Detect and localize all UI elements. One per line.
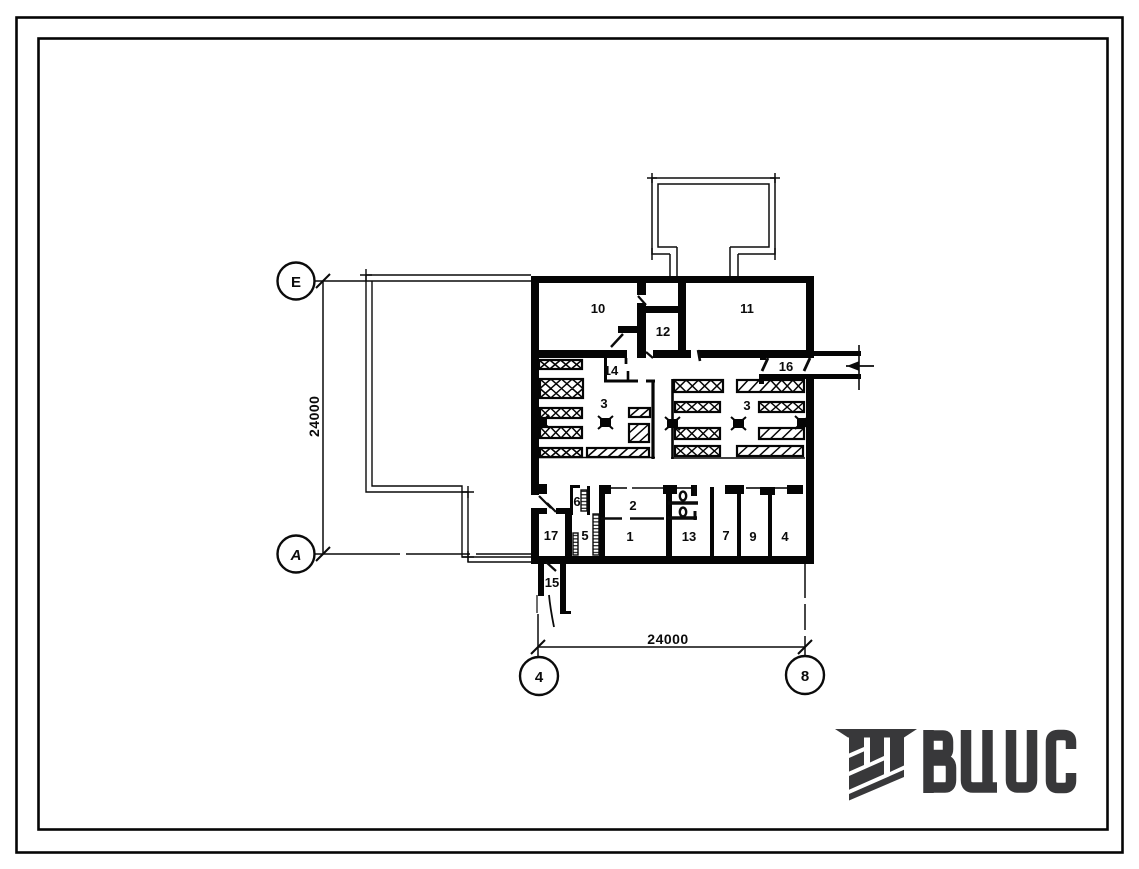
svg-text:9: 9 xyxy=(749,529,756,544)
svg-text:Е: Е xyxy=(291,274,301,291)
svg-text:5: 5 xyxy=(581,528,588,543)
svg-text:14: 14 xyxy=(604,363,619,378)
svg-text:6: 6 xyxy=(573,494,580,509)
svg-text:7: 7 xyxy=(722,528,729,543)
svg-text:10: 10 xyxy=(591,301,605,316)
svg-text:8: 8 xyxy=(801,668,809,685)
svg-text:15: 15 xyxy=(545,575,559,590)
svg-text:4: 4 xyxy=(781,529,789,544)
svg-text:3: 3 xyxy=(600,396,607,411)
svg-text:1: 1 xyxy=(626,529,633,544)
svg-text:24000: 24000 xyxy=(306,396,322,437)
svg-text:17: 17 xyxy=(544,528,558,543)
svg-text:А: А xyxy=(290,547,302,564)
svg-text:12: 12 xyxy=(656,324,670,339)
svg-text:24000: 24000 xyxy=(647,631,688,647)
svg-text:13: 13 xyxy=(682,529,696,544)
svg-text:11: 11 xyxy=(740,301,754,316)
svg-text:2: 2 xyxy=(629,498,636,513)
svg-text:16: 16 xyxy=(779,359,793,374)
svg-text:3: 3 xyxy=(743,398,750,413)
svg-text:4: 4 xyxy=(535,669,544,686)
